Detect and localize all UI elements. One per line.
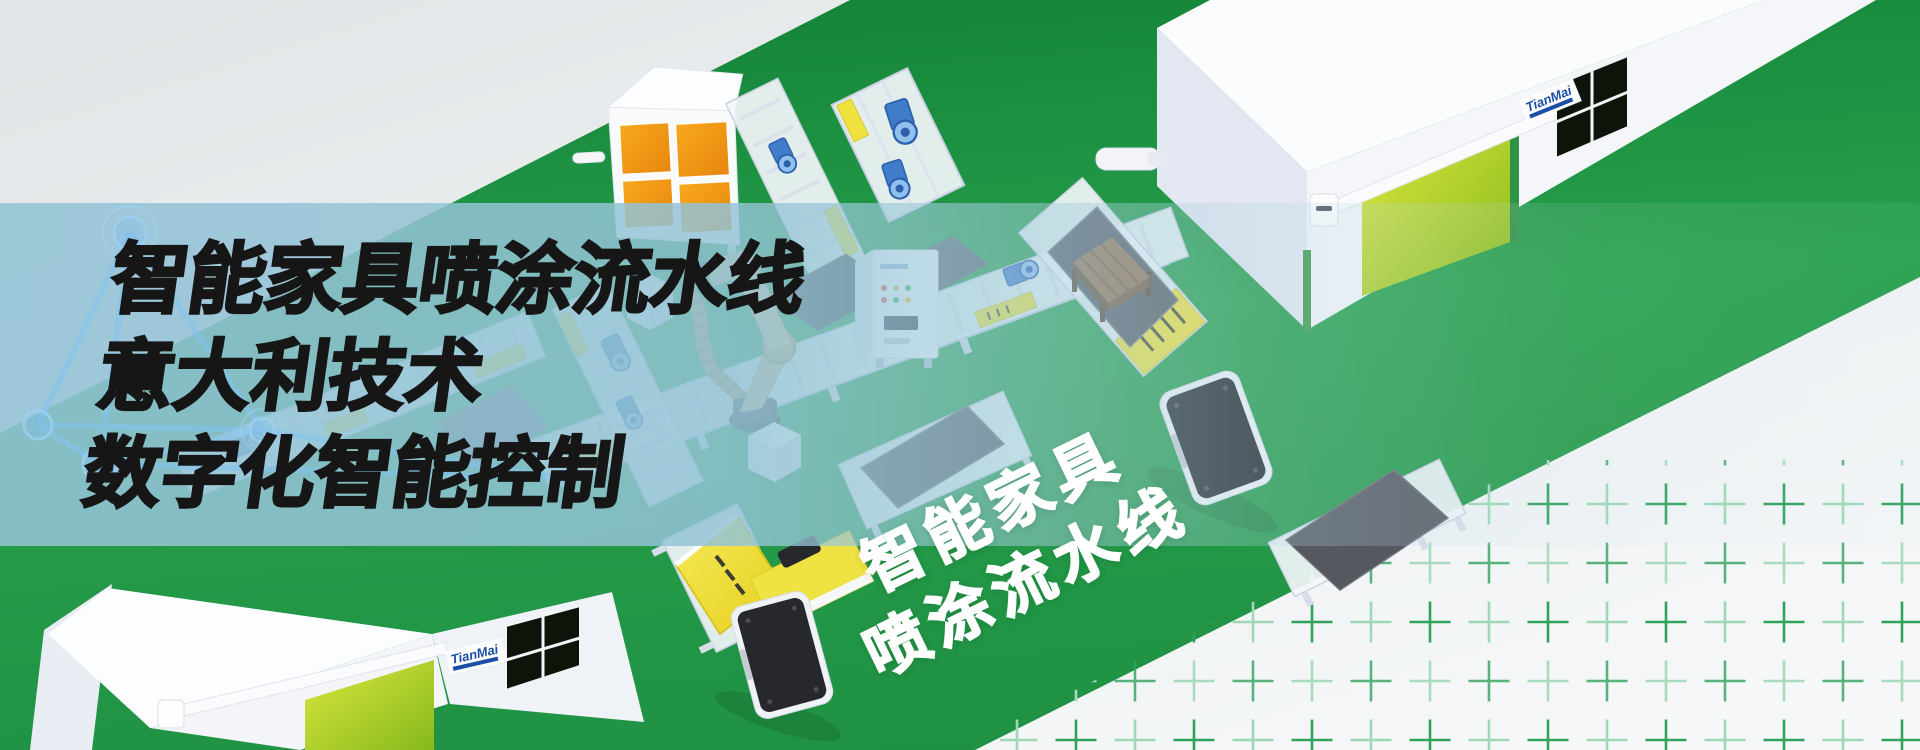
rail-end-cap-bl: [158, 700, 184, 728]
booth-orange-panel: [619, 122, 672, 175]
hero-title-line-3: 数字化智能控制: [78, 426, 785, 523]
hero-title-line-1: 智能家具喷涂流水线: [105, 232, 812, 329]
wireframe-node: [24, 411, 52, 439]
roof-vent-elbow: [1148, 152, 1168, 166]
hero-title: 智能家具喷涂流水线 意大利技术 数字化智能控制: [78, 232, 812, 523]
hero-banner: TianMai TianMai: [0, 0, 1920, 750]
booth-orange-panel: [675, 121, 730, 178]
booth-side-pipe: [573, 152, 605, 164]
hero-title-line-2: 意大利技术: [91, 329, 798, 426]
